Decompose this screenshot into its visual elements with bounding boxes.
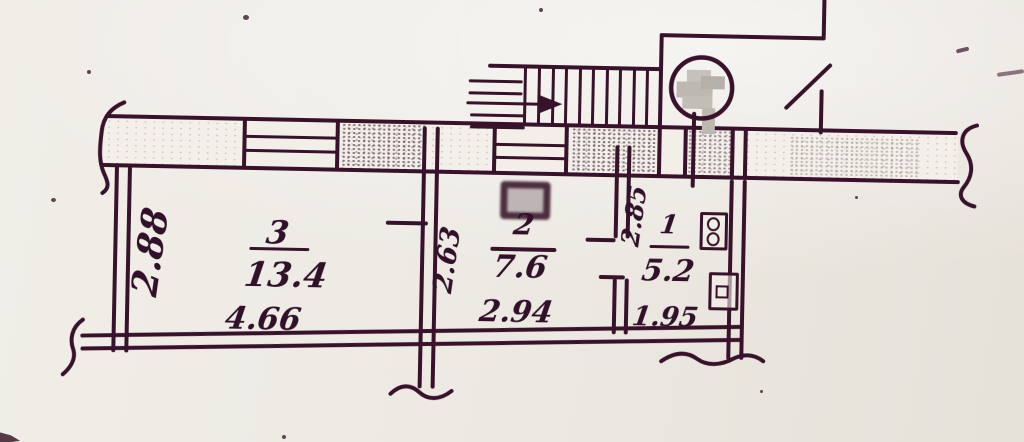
break-mark-icon xyxy=(390,386,451,398)
door-tick xyxy=(599,275,625,279)
room-area: 13.4 xyxy=(242,255,331,297)
scanned-floor-plan-page: { "plan": { "rooms": [ { "number": "3", … xyxy=(0,0,1024,442)
door-tick xyxy=(586,238,616,242)
fixture-drain-icon xyxy=(715,285,728,298)
room-bottom-dimension: 2.94 xyxy=(477,294,555,330)
scan-speck xyxy=(51,198,56,202)
stairs-arrow-icon xyxy=(538,95,562,114)
scan-speck xyxy=(855,196,858,199)
break-mark-icon xyxy=(661,353,763,365)
room-bottom-dimension: 4.66 xyxy=(223,301,304,338)
room-area: 7.6 xyxy=(490,249,549,286)
fixture-knob-icon xyxy=(706,232,719,246)
scan-speck xyxy=(87,70,91,74)
break-mark-icon xyxy=(961,125,977,206)
fixture-cistern xyxy=(699,212,728,251)
scan-speck xyxy=(282,435,286,439)
scan-speck xyxy=(243,15,249,20)
stamp-seal-circle xyxy=(671,57,733,119)
scan-speck xyxy=(760,390,763,393)
room-area: 5.2 xyxy=(639,253,696,289)
break-mark-icon xyxy=(821,91,822,132)
scan-speck xyxy=(539,8,543,12)
break-mark-icon xyxy=(786,65,830,109)
fixture-sink xyxy=(708,272,739,311)
floor-plan-drawing: 3 13.4 4.66 2 7.6 2.94 1 5.2 1.95 2.88 2… xyxy=(0,0,1024,442)
fixture-knob-icon xyxy=(707,217,720,231)
room-bottom-dimension: 1.95 xyxy=(630,301,700,333)
wall-end-curl xyxy=(99,102,124,193)
